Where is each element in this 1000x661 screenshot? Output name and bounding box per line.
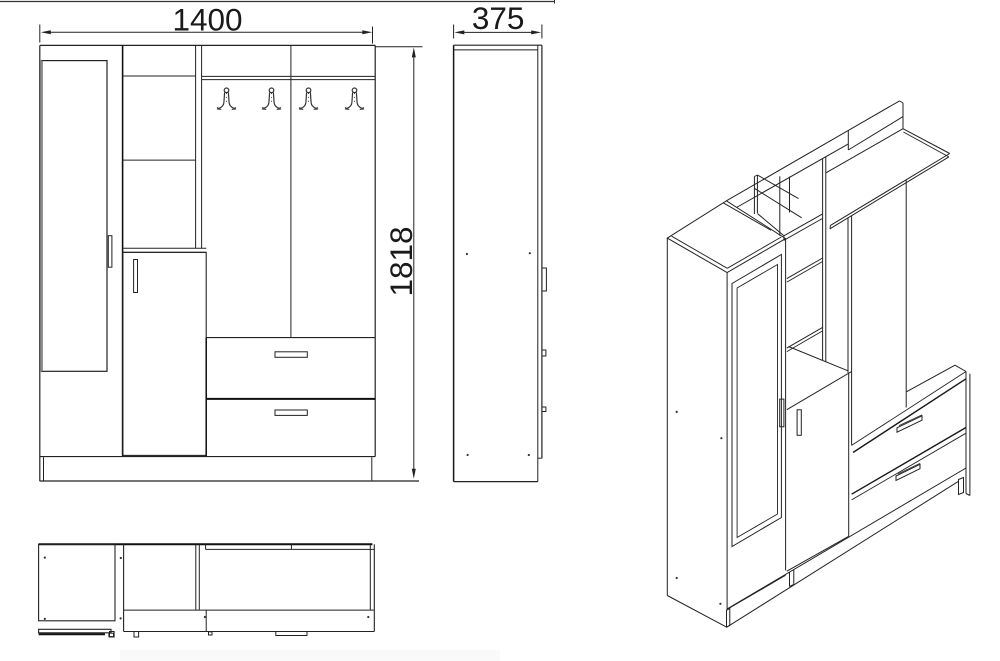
svg-text:1818: 1818: [383, 226, 419, 296]
svg-text:375: 375: [472, 0, 525, 36]
